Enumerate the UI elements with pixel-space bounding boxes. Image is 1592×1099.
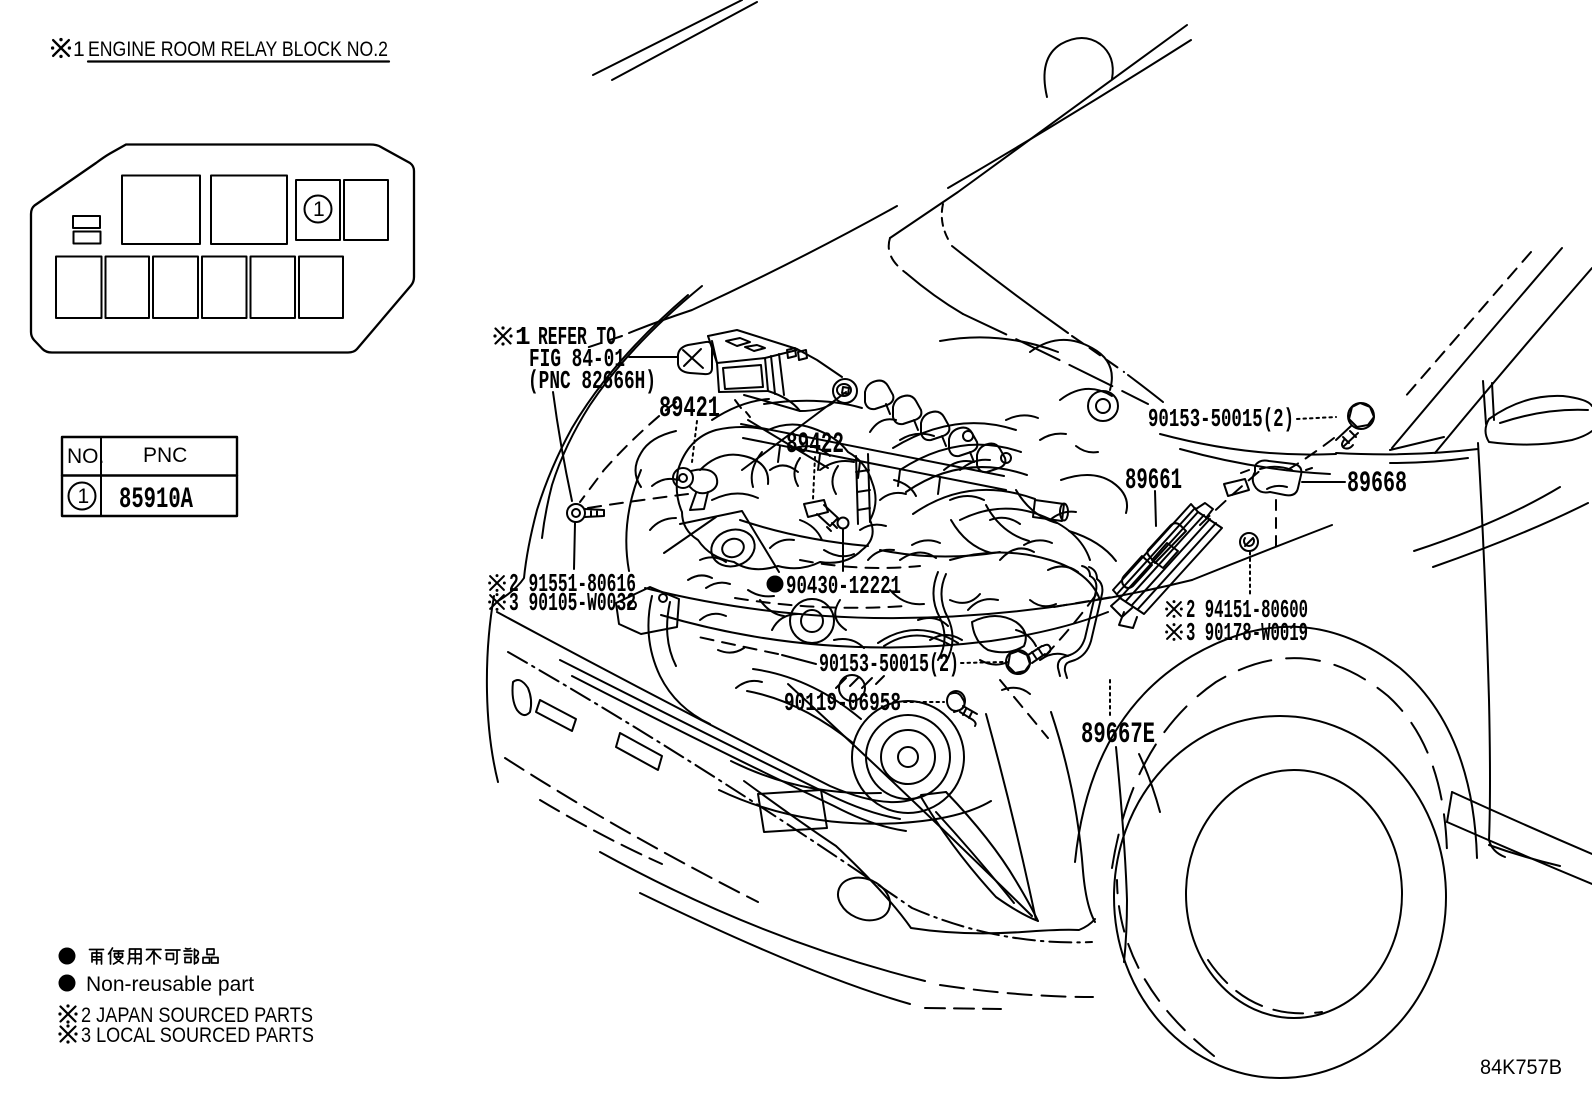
svg-text:90430-12221: 90430-12221	[786, 571, 901, 601]
svg-text:3 90105-W0032: 3 90105-W0032	[509, 588, 636, 618]
svg-text:89667E: 89667E	[1081, 718, 1155, 752]
svg-text:ENGINE ROOM RELAY BLOCK NO.2: ENGINE ROOM RELAY BLOCK NO.2	[88, 38, 388, 61]
svg-text:90153-50015(2): 90153-50015(2)	[819, 649, 959, 679]
svg-text:NO.: NO.	[67, 445, 104, 468]
svg-text:(PNC 82666H): (PNC 82666H)	[528, 366, 656, 396]
svg-text:PNC: PNC	[143, 444, 187, 467]
svg-text:1: 1	[313, 198, 325, 221]
svg-text:85910A: 85910A	[119, 483, 193, 517]
svg-text:1: 1	[78, 485, 90, 508]
svg-text:3 LOCAL SOURCED PARTS: 3 LOCAL SOURCED PARTS	[81, 1024, 314, 1047]
svg-text:89661: 89661	[1125, 464, 1182, 498]
svg-text:89668: 89668	[1347, 467, 1407, 501]
svg-text:3 90178-W0019: 3 90178-W0019	[1186, 618, 1308, 648]
svg-text:90153-50015(2): 90153-50015(2)	[1148, 404, 1294, 434]
svg-text:1: 1	[73, 38, 85, 61]
svg-text:90119-06958: 90119-06958	[784, 688, 901, 718]
svg-text:84K757B: 84K757B	[1480, 1056, 1562, 1079]
svg-text:Non-reusable part: Non-reusable part	[86, 973, 254, 996]
